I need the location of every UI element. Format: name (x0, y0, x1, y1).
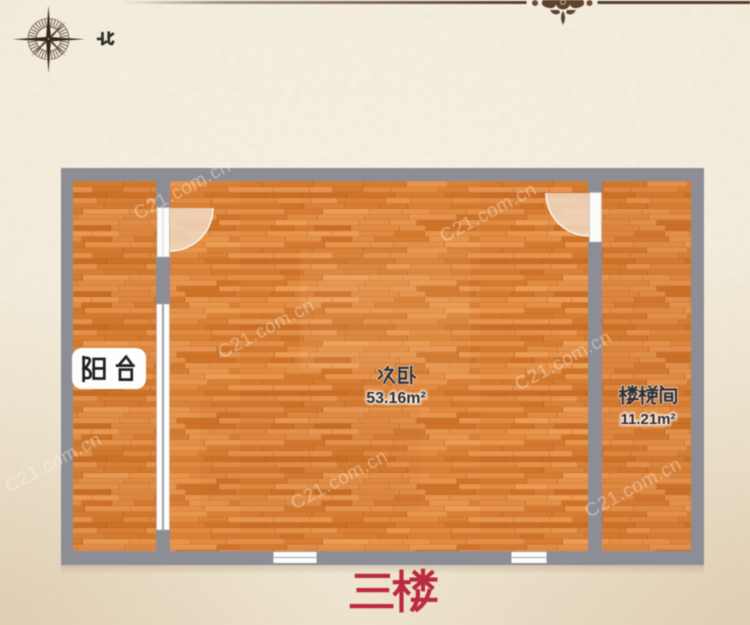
svg-text:11.21m²: 11.21m² (620, 411, 675, 428)
svg-text:53.16m²: 53.16m² (366, 390, 426, 407)
